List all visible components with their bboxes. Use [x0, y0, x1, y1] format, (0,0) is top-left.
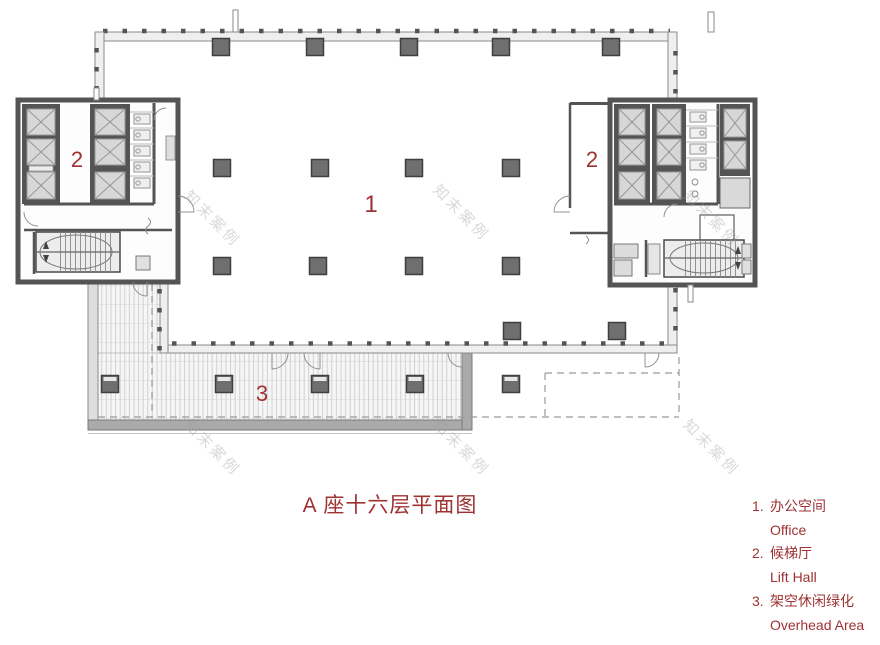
toilet-fixture: [134, 130, 150, 140]
wall-stub: [94, 88, 99, 100]
terrace-wall-bottom: [88, 420, 472, 430]
legend-item-office: 1. 办公空间 Office: [752, 495, 864, 542]
service-box: [742, 260, 751, 274]
column: [406, 258, 423, 275]
column: [307, 39, 324, 56]
terrace-deck: [88, 282, 472, 434]
terrace-area-label: 3: [256, 381, 268, 406]
right-stair: [664, 240, 744, 277]
sink-counter: [166, 136, 175, 160]
left-core: [18, 88, 178, 282]
legend-item-lift-hall: 2. 候梯厅 Lift Hall: [752, 542, 864, 589]
legend-number: 1.: [752, 495, 770, 519]
elevator-bank-left-west: [22, 104, 60, 204]
toilet-fixture: [134, 162, 150, 172]
service-box: [136, 256, 150, 270]
toilet-fixture: [690, 160, 706, 170]
floor-plan-drawing: 1 2 2 3: [0, 0, 880, 645]
right-lift-hall: [554, 103, 610, 244]
legend: 1. 办公空间 Office 2. 候梯厅 Lift Hall 3. 架空休闲绿…: [752, 495, 864, 637]
service-box: [614, 244, 638, 258]
top-curtain-wall: [95, 31, 677, 41]
toilet-fixture: [134, 146, 150, 156]
wall-break-symbol: [586, 236, 589, 244]
lift-hall-label-right: 2: [586, 147, 598, 172]
wall-stub: [233, 10, 238, 32]
column: [213, 39, 230, 56]
service-box: [614, 260, 632, 276]
column: [312, 160, 329, 177]
toilet-fixture: [690, 144, 706, 154]
elevator-bank-right-1: [614, 104, 650, 204]
service-box: [742, 244, 751, 258]
floor-plan-page: 1 2 2 3 知末案例 知末案例 知末案例 知末案例 知末案例 知末案例 A …: [0, 0, 880, 645]
legend-item-overhead-area: 3. 架空休闲绿化 Overhead Area: [752, 590, 864, 637]
service-box: [648, 244, 660, 274]
service-room: [700, 215, 734, 243]
door-arc: [554, 196, 570, 212]
legend-label-en: Overhead Area: [770, 614, 864, 638]
toilet-fixture: [134, 178, 150, 188]
left-stair: [36, 232, 120, 272]
terrace-wall-right: [462, 352, 472, 430]
column: [310, 258, 327, 275]
toilet-fixture: [690, 128, 706, 138]
column: [504, 323, 521, 340]
legend-number: 2.: [752, 542, 770, 566]
column-grid: [213, 39, 626, 340]
column: [503, 258, 520, 275]
toilet-fixture: [134, 114, 150, 124]
legend-label-zh: 办公空间: [770, 495, 826, 519]
legend-label-zh: 候梯厅: [770, 542, 812, 566]
legend-label-zh: 架空休闲绿化: [770, 590, 854, 614]
column: [503, 160, 520, 177]
column: [493, 39, 510, 56]
terrace-wall-left: [88, 282, 98, 430]
plan-title: A 座十六层平面图: [95, 489, 685, 519]
legend-number: 3.: [752, 590, 770, 614]
south-glass-wall: [165, 344, 677, 354]
right-core: [554, 100, 755, 302]
legend-label-en: Office: [770, 519, 864, 543]
east-curtain-wall-lower: [668, 278, 677, 352]
column: [214, 258, 231, 275]
elevator-bank-left-east: [90, 104, 130, 204]
column: [603, 39, 620, 56]
wall-stub: [688, 285, 693, 302]
lift-hall-label-left: 2: [71, 147, 83, 172]
office-area-label: 1: [364, 191, 377, 218]
legend-label-en: Lift Hall: [770, 566, 864, 590]
column: [609, 323, 626, 340]
elevator-bank-right-2: [652, 104, 686, 204]
column: [401, 39, 418, 56]
wall-stub: [708, 12, 714, 32]
elevator-bank-right-3: [720, 104, 750, 208]
toilet-fixture: [690, 112, 706, 122]
east-curtain-wall-upper: [668, 32, 677, 103]
column: [214, 160, 231, 177]
column: [406, 160, 423, 177]
